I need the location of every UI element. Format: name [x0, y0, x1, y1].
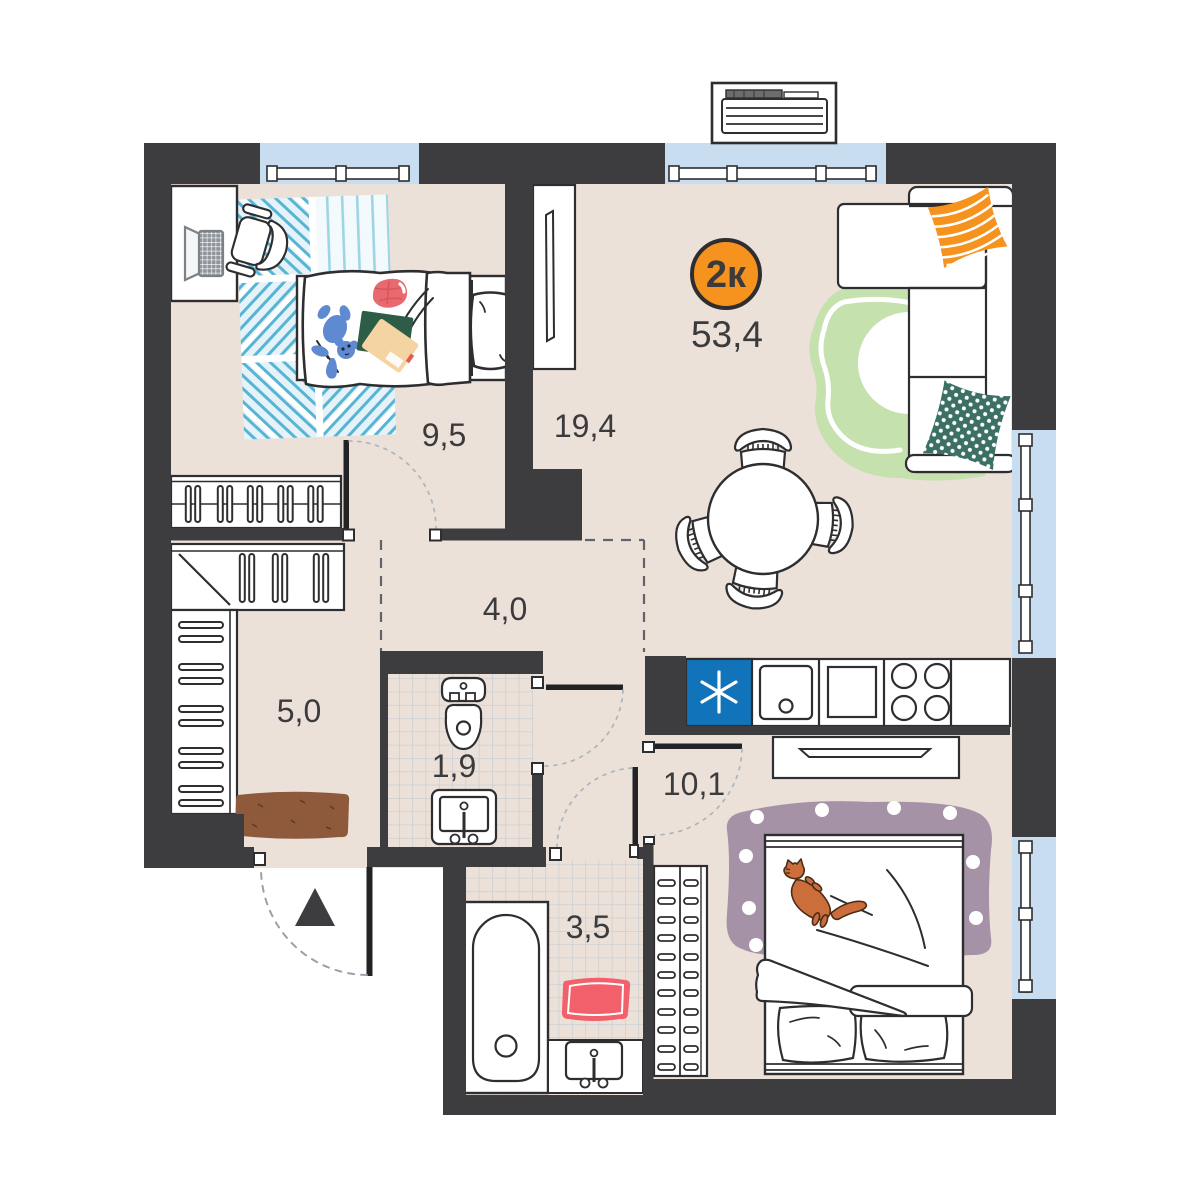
svg-text:1,9: 1,9 — [432, 748, 476, 784]
svg-text:10,1: 10,1 — [663, 766, 725, 802]
svg-text:3,5: 3,5 — [566, 909, 610, 945]
svg-text:19,4: 19,4 — [554, 408, 616, 444]
svg-text:53,4: 53,4 — [691, 314, 763, 355]
svg-text:9,5: 9,5 — [422, 417, 466, 453]
svg-text:5,0: 5,0 — [277, 693, 321, 729]
svg-text:2к: 2к — [706, 254, 747, 296]
svg-text:4,0: 4,0 — [483, 591, 527, 627]
